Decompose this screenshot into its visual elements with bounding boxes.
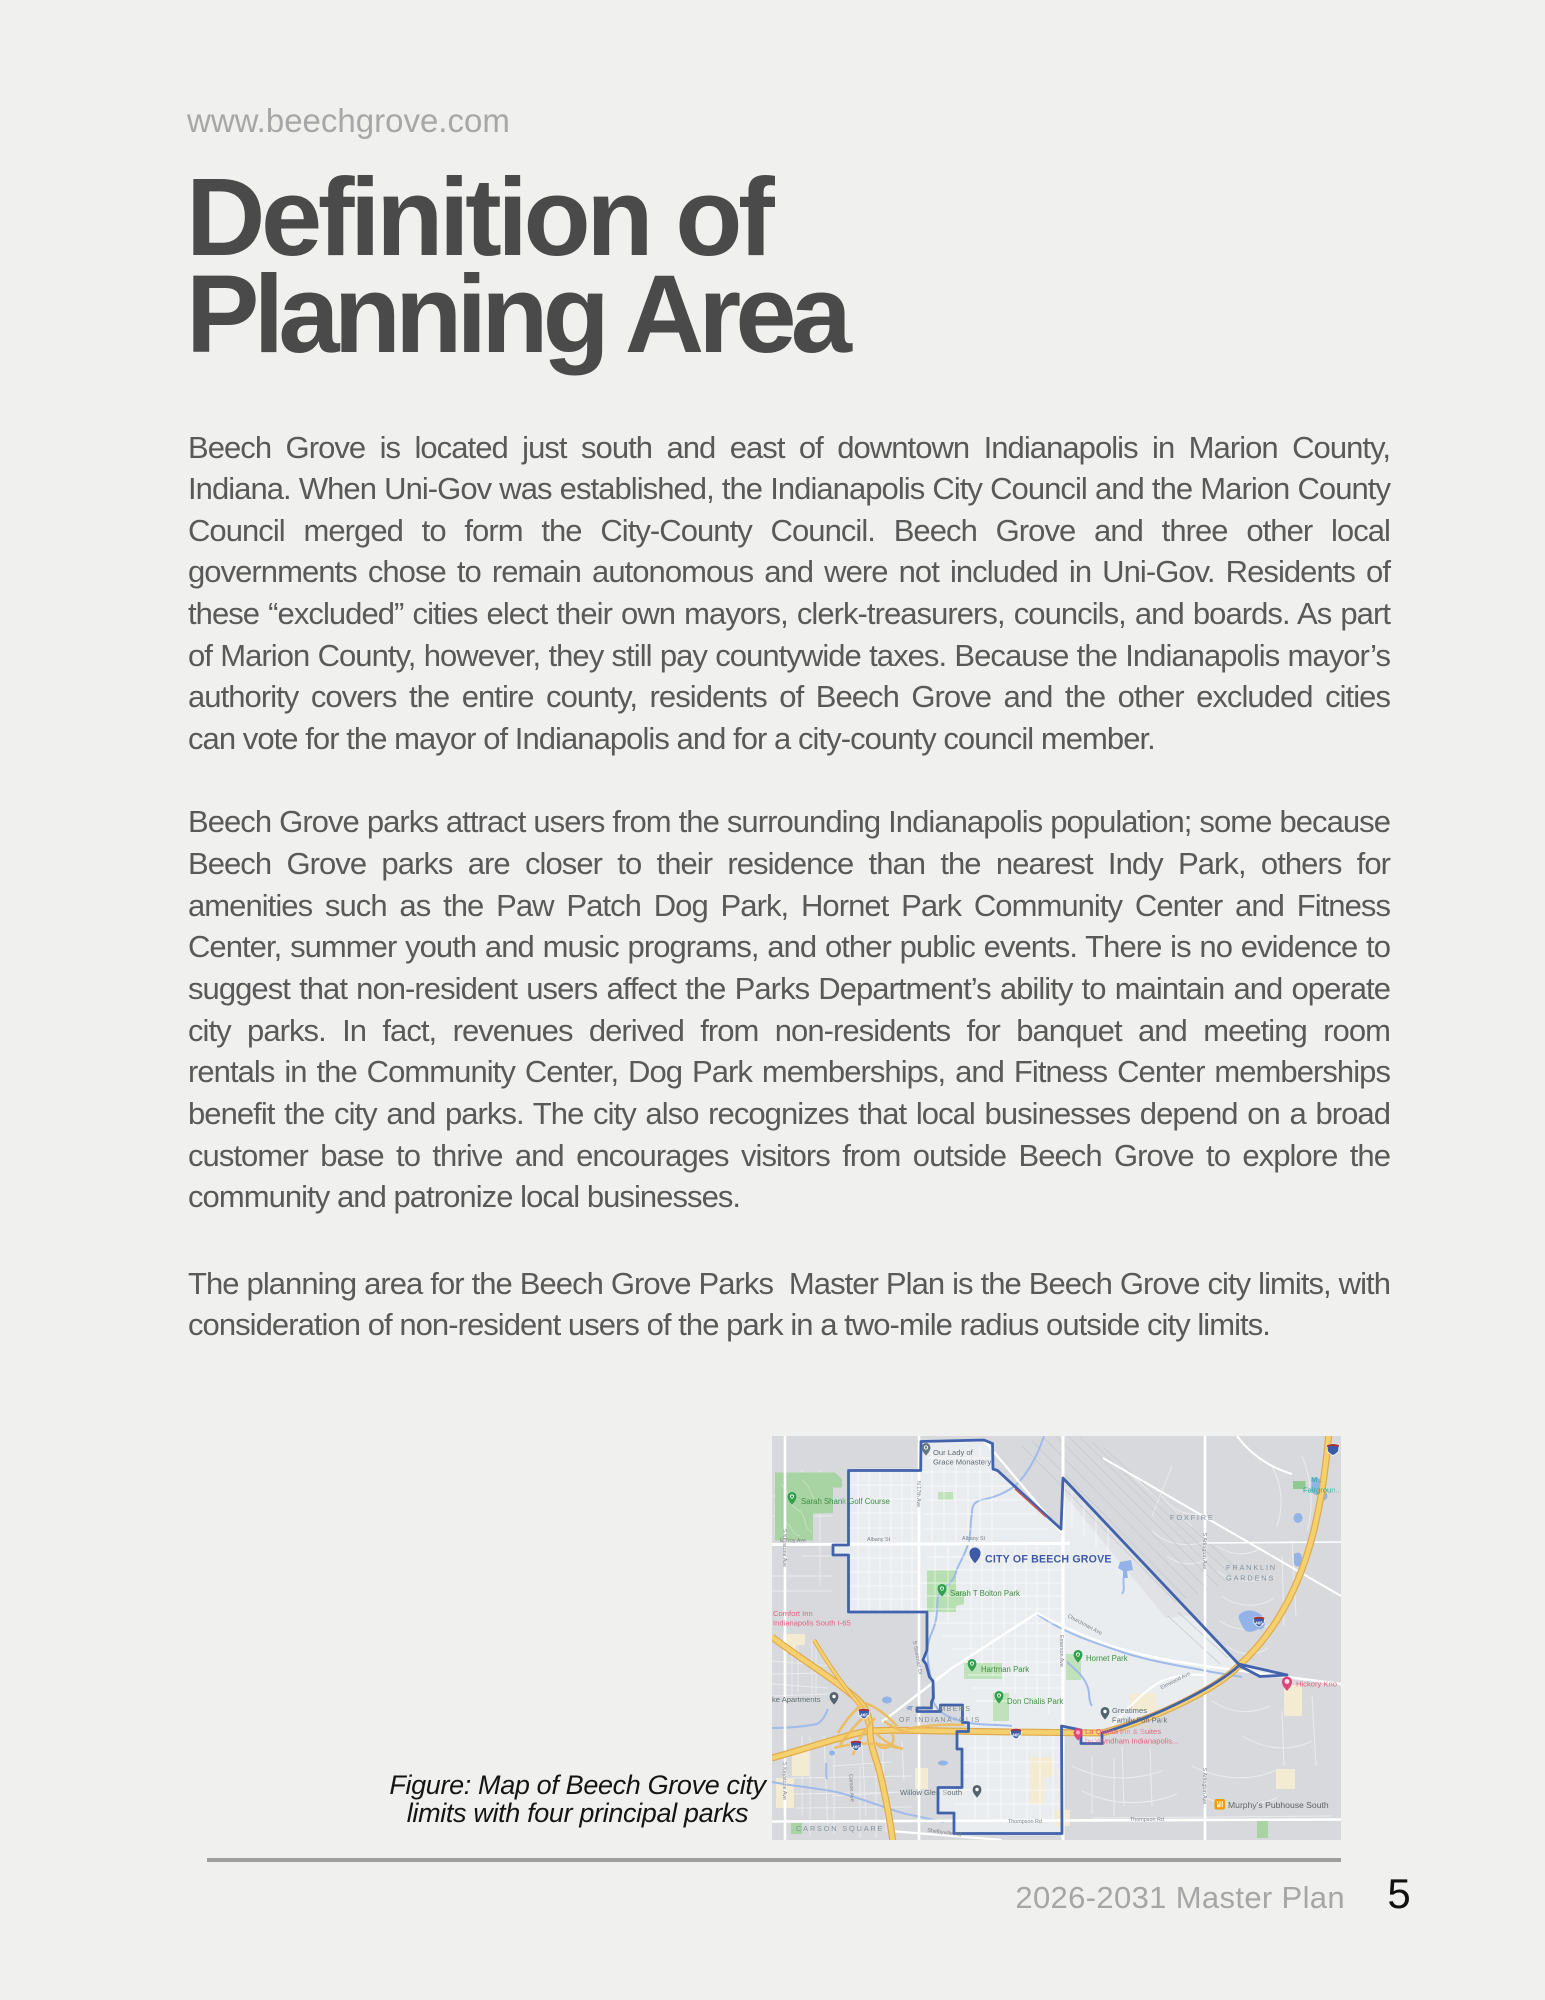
svg-text:465: 465 (1255, 1620, 1263, 1625)
svg-text:S Arlington Ave: S Arlington Ave (1201, 1533, 1207, 1569)
svg-text:Hornet Park: Hornet Park (1086, 1654, 1128, 1663)
svg-text:S Keystone Ave: S Keystone Ave (781, 1762, 787, 1800)
svg-text:THE TIMBERS: THE TIMBERS (909, 1706, 971, 1713)
svg-text:Grace Monastery: Grace Monastery (933, 1458, 991, 1467)
svg-text:Willow Glen South: Willow Glen South (900, 1788, 962, 1797)
svg-text:by Wyndham Indianapolis...: by Wyndham Indianapolis... (1085, 1737, 1178, 1746)
svg-text:465: 465 (860, 1712, 868, 1717)
svg-text:OF INDIANAPOLIS: OF INDIANAPOLIS (899, 1717, 981, 1724)
svg-text:Albany St: Albany St (962, 1536, 986, 1542)
svg-text:Greatimes: Greatimes (1112, 1706, 1147, 1715)
svg-text:GARDENS: GARDENS (1226, 1574, 1275, 1583)
svg-text:CITY OF BEECH GROVE: CITY OF BEECH GROVE (985, 1554, 1112, 1566)
svg-text:465: 465 (852, 1744, 860, 1749)
svg-text:CARSON SQUARE: CARSON SQUARE (796, 1824, 884, 1833)
svg-text:Our Lady of: Our Lady of (933, 1448, 974, 1457)
svg-text:Thompson Rd: Thompson Rd (1008, 1819, 1042, 1825)
svg-text:Sarah Shank Golf Course: Sarah Shank Golf Course (801, 1497, 890, 1506)
svg-text:Hartman Park: Hartman Park (981, 1665, 1029, 1674)
svg-text:Emerson Ave: Emerson Ave (1058, 1635, 1064, 1667)
svg-text:Comfort Inn: Comfort Inn (773, 1609, 813, 1618)
svg-text:FRANKLIN: FRANKLIN (1226, 1563, 1277, 1572)
svg-text:La Quinta Inn & Suites: La Quinta Inn & Suites (1085, 1727, 1161, 1736)
svg-text:FOXFIRE: FOXFIRE (1170, 1513, 1215, 1522)
svg-text:Indianapolis South I-65: Indianapolis South I-65 (773, 1619, 851, 1628)
svg-text:Albany St: Albany St (867, 1537, 891, 1543)
svg-text:Thompson Rd: Thompson Rd (1130, 1817, 1164, 1823)
svg-text:Fairgroun...: Fairgroun... (1303, 1486, 1341, 1495)
svg-text:S Arlington Ave: S Arlington Ave (1201, 1768, 1207, 1804)
svg-text:Don Chalis Park: Don Chalis Park (1007, 1697, 1063, 1706)
svg-text:Sarah T Bolton Park: Sarah T Bolton Park (950, 1589, 1020, 1598)
svg-text:Family Fun Park: Family Fun Park (1112, 1716, 1167, 1725)
svg-text:Hickory Kno: Hickory Kno (1296, 1680, 1337, 1689)
svg-text:S Keystone Ave: S Keystone Ave (781, 1529, 787, 1567)
svg-text:N 17th Ave: N 17th Ave (915, 1481, 921, 1507)
svg-text:465: 465 (1012, 1732, 1020, 1737)
svg-text:ke Apartments: ke Apartments (772, 1695, 821, 1704)
svg-text:Murphy’s Pubhouse South: Murphy’s Pubhouse South (1228, 1800, 1329, 1810)
